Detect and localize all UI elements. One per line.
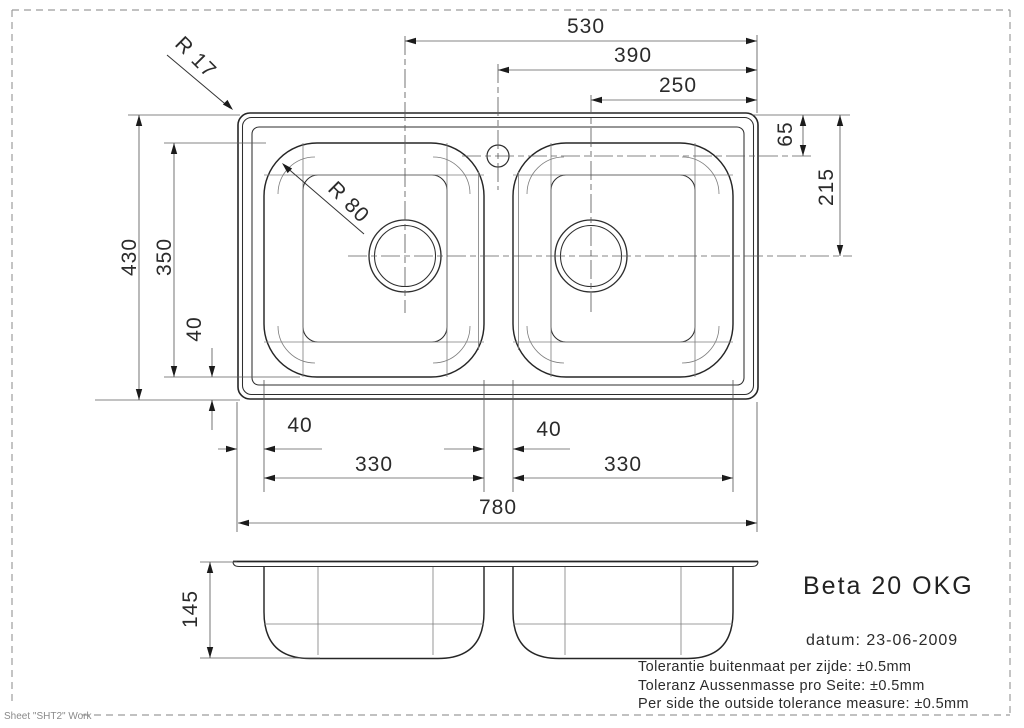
- dim-330-right: 330: [604, 453, 642, 476]
- tolerance-line-en: Per side the outside tolerance measure: …: [638, 696, 969, 712]
- sheet-label: Sheet "SHT2" Work: [4, 711, 93, 722]
- sink-top-view: [238, 36, 852, 399]
- dim-390: 390: [614, 44, 652, 67]
- dim-430: 430: [118, 238, 141, 276]
- dim-350: 350: [153, 238, 176, 276]
- right-bowl-profile: [513, 567, 733, 659]
- tolerance-line-nl: Tolerantie buitenmaat per zijde: ±0.5mm: [638, 659, 911, 675]
- page-border: [12, 10, 1010, 715]
- sink-side-view: [233, 562, 758, 659]
- dim-215: 215: [815, 168, 838, 206]
- dimension-labels: 530 390 250 65 215 430 350 40 40 40 330 …: [118, 15, 838, 628]
- right-bowl: [513, 143, 733, 377]
- dim-r17: R 17: [170, 32, 220, 82]
- tolerance-line-de: Toleranz Aussenmasse pro Seite: ±0.5mm: [638, 678, 925, 694]
- dim-530: 530: [567, 15, 605, 38]
- left-bowl: [264, 143, 484, 377]
- dim-145: 145: [179, 590, 202, 628]
- dimension-lines: [95, 35, 850, 658]
- dim-330-left: 330: [355, 453, 393, 476]
- dim-40-bottom-mid: 40: [536, 418, 561, 441]
- dim-780: 780: [479, 496, 517, 519]
- dim-40-side: 40: [183, 316, 206, 341]
- dimension-arrowheads: [136, 38, 843, 658]
- dim-250: 250: [659, 74, 697, 97]
- model-name: Beta 20 OKG: [803, 572, 974, 600]
- title-block: Beta 20 OKG datum: 23-06-2009 Tolerantie…: [638, 572, 974, 712]
- drawing-page: 530 390 250 65 215 430 350 40 40 40 330 …: [0, 0, 1024, 728]
- dim-r80: R 80: [323, 177, 373, 227]
- dim-40-bottom-left: 40: [287, 414, 312, 437]
- side-view-tangent-lines: [264, 567, 733, 655]
- sink-technical-drawing: 530 390 250 65 215 430 350 40 40 40 330 …: [0, 0, 1024, 728]
- left-bowl-profile: [264, 567, 484, 659]
- dim-65: 65: [774, 121, 797, 146]
- date-line: datum: 23-06-2009: [806, 632, 958, 649]
